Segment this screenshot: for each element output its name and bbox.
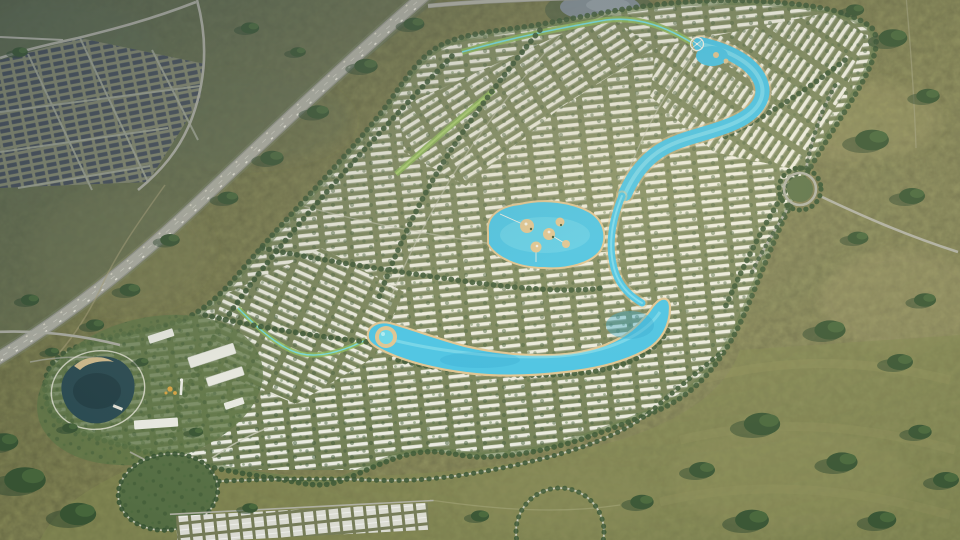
render-canvas — [0, 0, 960, 540]
render-figure — [0, 0, 960, 540]
aerial-masterplan-render — [0, 0, 960, 540]
lighting-overlays — [0, 0, 960, 540]
